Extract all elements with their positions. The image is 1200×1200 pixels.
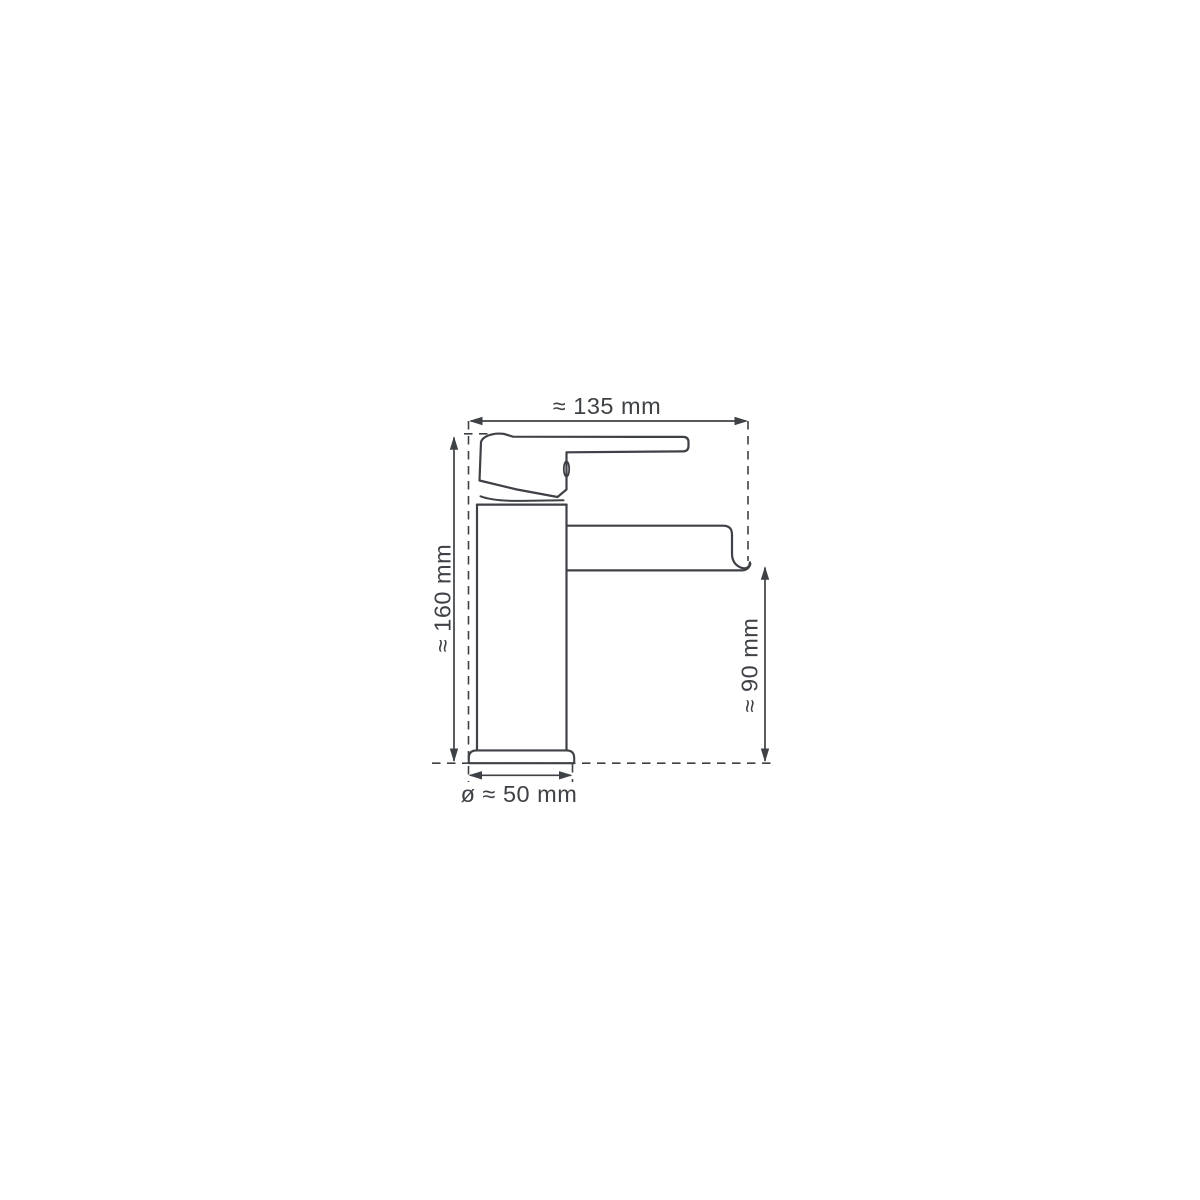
spout-bottom-edge bbox=[567, 564, 751, 571]
technical-drawing-page: ≈ 135 mm ≈ 160 mm ≈ 90 mm ø ≈ 50 mm bbox=[0, 0, 1200, 1200]
arrowhead-left-icon bbox=[469, 417, 483, 425]
faucet-dimension-diagram: ≈ 135 mm ≈ 160 mm ≈ 90 mm ø ≈ 50 mm bbox=[0, 0, 1200, 1200]
label-width: ≈ 135 mm bbox=[553, 393, 661, 419]
dim-base-diameter-50 bbox=[469, 771, 573, 779]
arrowhead-up-icon bbox=[450, 436, 458, 450]
arrowhead-right-icon bbox=[735, 417, 749, 425]
arrowhead-down-icon bbox=[761, 749, 769, 763]
label-height: ≈ 160 mm bbox=[430, 544, 456, 652]
label-base-diameter: ø ≈ 50 mm bbox=[461, 781, 578, 807]
spout-top-edge bbox=[567, 526, 750, 569]
base-plate bbox=[469, 750, 574, 763]
cartridge-collar-line bbox=[481, 496, 564, 501]
arrowhead-left-icon bbox=[469, 771, 483, 779]
arrowhead-right-icon bbox=[559, 771, 573, 779]
label-spout-height: ≈ 90 mm bbox=[737, 618, 763, 713]
arrowhead-up-icon bbox=[761, 566, 769, 580]
arrowhead-down-icon bbox=[450, 749, 458, 763]
extension-lines bbox=[432, 421, 772, 782]
faucet-outline bbox=[469, 434, 751, 764]
faucet-handle bbox=[480, 434, 689, 497]
dimension-lines bbox=[450, 417, 769, 780]
